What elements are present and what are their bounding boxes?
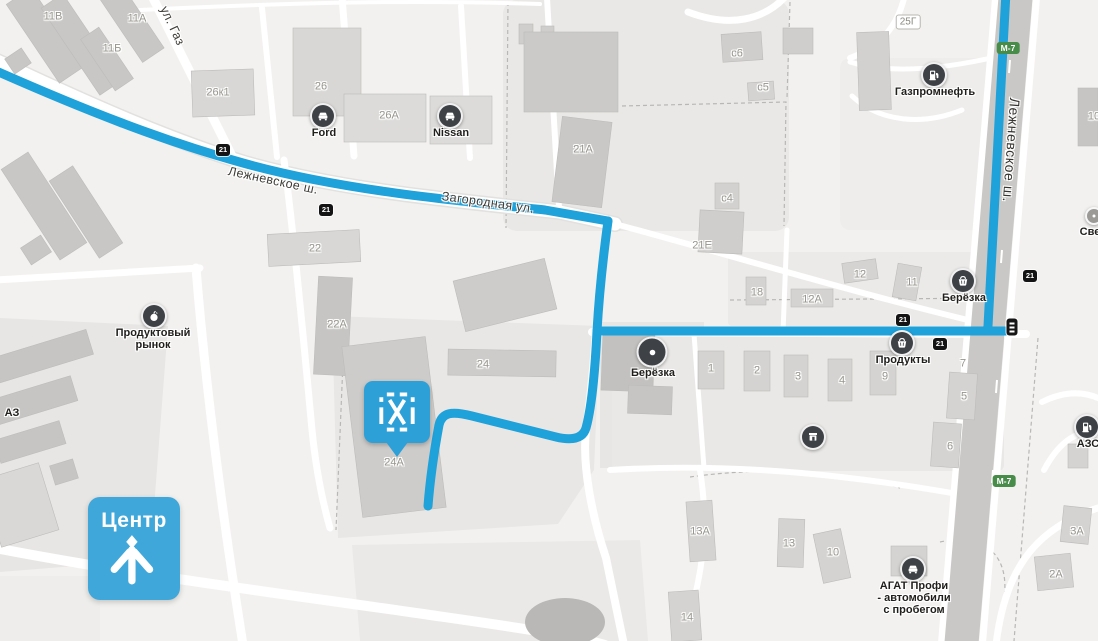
basket-icon [895,336,909,350]
building-label-7: 7 [960,359,966,370]
building-label-24А: 24А [384,458,404,469]
up-arrow-icon [99,533,169,585]
building-label-26к1: 26к1 [206,88,229,99]
building-label-2А: 2А [1049,570,1062,581]
transit-stop-icon[interactable] [1007,319,1018,336]
building-label-21Е: 21Е [692,241,712,252]
agat-profi-poi-label[interactable]: АГАТ Профи - автомобили с пробегом [877,580,950,616]
building-label-13: 13 [783,539,795,550]
building-label-с6: с6 [731,49,743,60]
azs-poi-label[interactable]: АЗС [1077,438,1098,450]
road-sign-21: 21 [896,314,910,326]
highway-badge-m7: М-7 [997,42,1020,54]
building-label-25g: 25Г [896,15,921,30]
building-label-6: 6 [947,442,953,453]
produktovy-rynok-poi[interactable] [141,303,167,329]
building-label-11: 11 [906,278,917,289]
building-label-11А: 11А [128,14,147,25]
building-label-13А: 13А [690,527,710,538]
highway-badge-m7: М-7 [993,475,1016,487]
berezka-east-poi[interactable] [950,268,976,294]
car-icon [906,562,920,576]
building-label-22: 22 [309,244,321,255]
nissan-poi-label[interactable]: Nissan [433,127,469,139]
pin-icon [1090,212,1098,220]
center-direction-badge: Центр [88,497,180,600]
ixi-pattern-icon [364,381,430,443]
building-label-26А: 26А [379,111,399,122]
nissan-poi[interactable] [437,103,463,129]
apple-icon [147,309,161,323]
building-label-11Б: 11Б [103,44,122,55]
building-label-21А: 21А [573,145,593,156]
basket-icon [956,274,970,288]
berezka-center-poi[interactable] [637,337,668,368]
building-label-4: 4 [839,376,845,387]
car-icon [443,109,457,123]
ford-poi-label[interactable]: Ford [312,127,336,139]
building-label-11В: 11В [44,12,63,23]
road-sign-21: 21 [319,204,333,216]
building-label-12А: 12А [802,295,822,306]
building-label-12: 12 [854,270,866,281]
edge-label-az: АЗ [5,407,20,419]
building-label-9: 9 [882,372,888,383]
building-label-10: 10 [1088,112,1098,123]
gazpromneft-poi-label[interactable]: Газпромнефть [895,86,975,98]
edge-label-sve: Све [1080,226,1098,238]
berezka-center-poi-label[interactable]: Берёзка [631,367,675,379]
azs-poi[interactable] [1074,414,1098,440]
agat-profi-poi[interactable] [900,556,926,582]
building-label-24: 24 [477,360,489,371]
building-label-3: 3 [795,372,801,383]
building-label-18: 18 [751,288,763,299]
road-sign-21: 21 [933,338,947,350]
fuel-icon [927,68,941,82]
building-label-5: 5 [961,392,967,403]
road-sign-21: 21 [1023,270,1037,282]
produkty-poi[interactable] [889,330,915,356]
building-label-14: 14 [681,613,693,624]
road-sign-21: 21 [216,144,230,156]
center-badge-label: Центр [101,509,167,533]
building-label-с4: с4 [721,194,733,205]
shop-icon [806,430,820,444]
gazpromneft-poi[interactable] [921,62,947,88]
kiosk-poi[interactable] [800,424,826,450]
produkty-poi-label[interactable]: Продукты [876,354,931,366]
fuel-icon [1080,420,1094,434]
building-label-с5: с5 [757,83,769,94]
berezka-east-poi-label[interactable]: Берёзка [942,292,986,304]
map-canvas[interactable]: Центр Лежневское ш.Загородная ул.Лежневс… [0,0,1098,641]
building-label-2: 2 [754,366,760,377]
building-label-26: 26 [315,82,327,93]
circle-dot-icon [645,345,659,359]
car-icon [316,109,330,123]
building-label-3А: 3А [1070,527,1083,538]
building-label-1: 1 [708,364,714,375]
building-label-22А: 22А [327,320,347,331]
building-label-10: 10 [827,548,839,559]
destination-marker[interactable] [364,381,430,457]
edge-poi-pin[interactable] [1085,207,1098,225]
ford-poi[interactable] [310,103,336,129]
produktovy-rynok-poi-label[interactable]: Продуктовый рынок [116,327,191,351]
